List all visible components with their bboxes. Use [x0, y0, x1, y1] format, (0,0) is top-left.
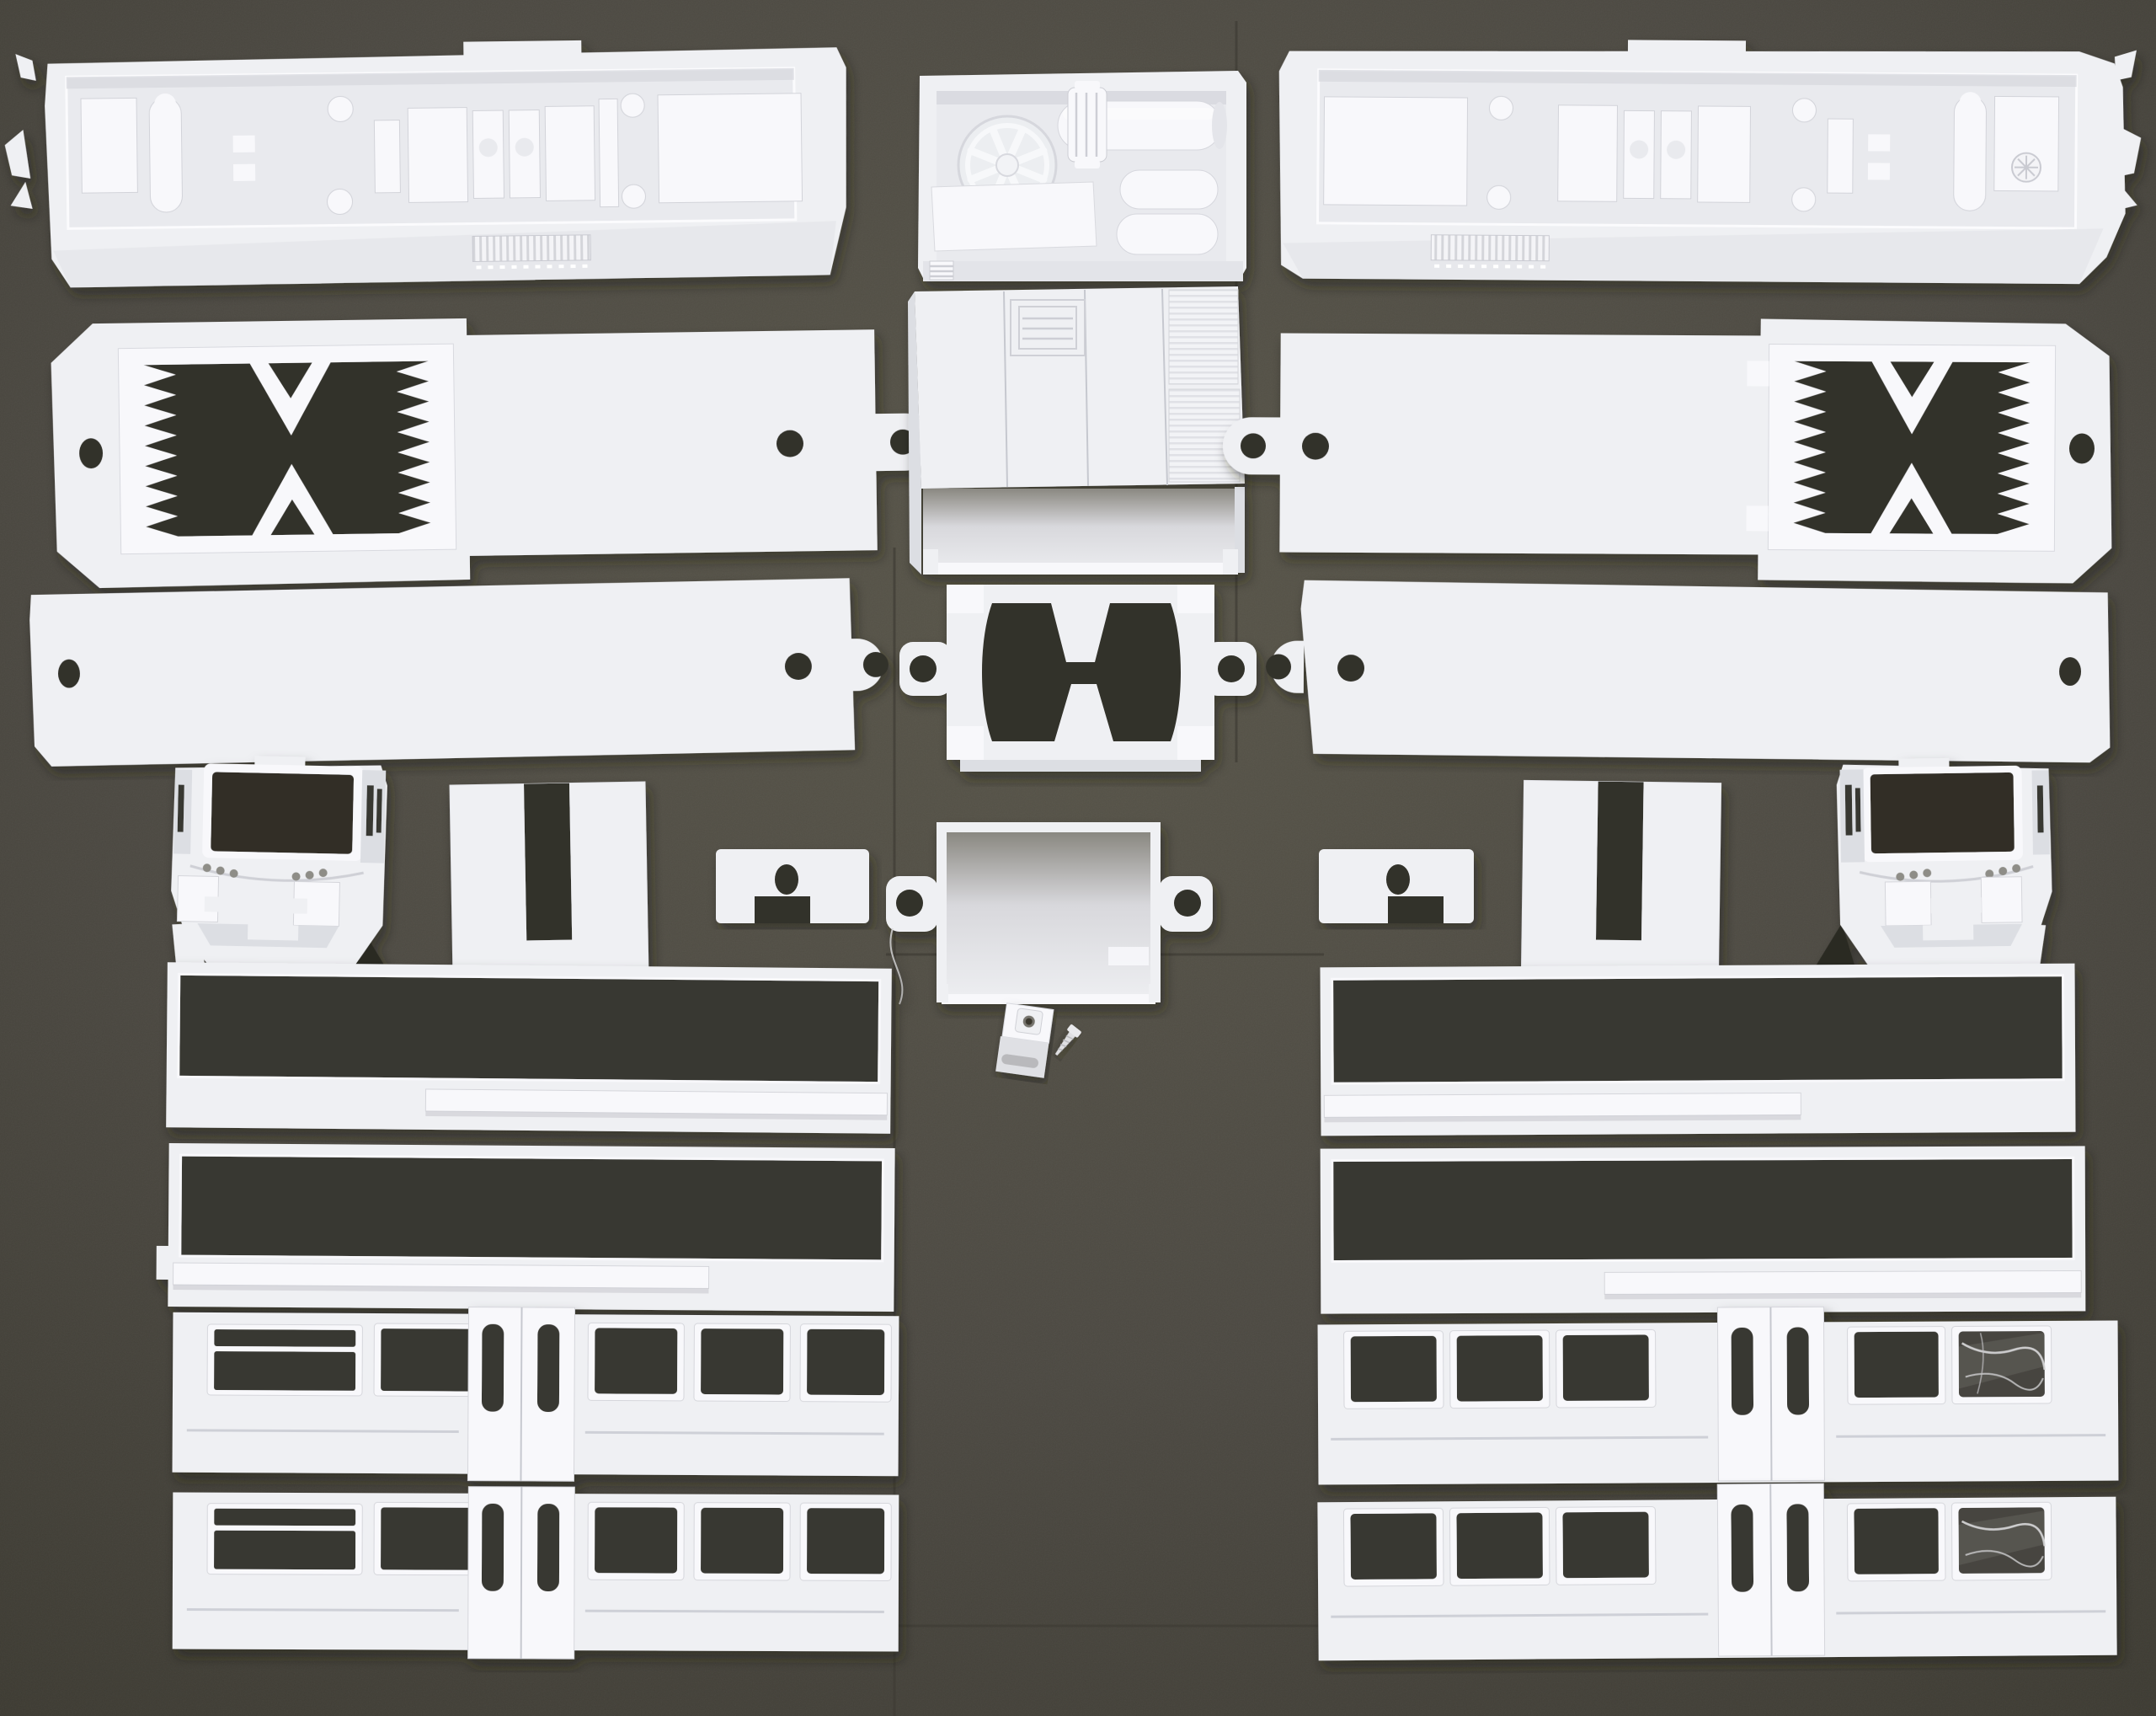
- window-opening: [595, 1328, 677, 1394]
- louvre-panel: [1169, 290, 1238, 384]
- floor-plate-right: [1265, 580, 2111, 762]
- side-wall-right-lower: [1317, 1482, 2116, 1661]
- bumper-bar: [1931, 897, 1982, 913]
- corner-tab: [937, 984, 948, 1002]
- boss: [622, 184, 645, 208]
- bumper-pod: [1981, 877, 2022, 923]
- window-frame-left-upper: [166, 962, 892, 1133]
- corner-notch: [1223, 549, 1238, 575]
- box-interior: [947, 832, 1150, 994]
- side-window-slot: [376, 789, 382, 832]
- hatch-panel: [1698, 106, 1751, 202]
- glazing-film-window: [1952, 1326, 2052, 1404]
- mount-hole: [2069, 433, 2095, 463]
- detail-panel: [658, 94, 803, 203]
- mount-hole: [1337, 655, 1364, 682]
- side-window-slot: [178, 785, 184, 832]
- clamp-step: [430, 361, 452, 386]
- clamp-step: [1747, 361, 1769, 386]
- floor-plate-left: [29, 578, 890, 767]
- cab-shell-left: [169, 754, 391, 972]
- windscreen-opening: [1870, 772, 2015, 853]
- window-opening: [1351, 1336, 1437, 1403]
- parts-photo: [0, 0, 2156, 1716]
- window-frame-left-lower: [156, 1143, 894, 1312]
- sill-strip: [425, 1089, 887, 1115]
- hood-interior: [923, 489, 1238, 573]
- eyelet-hole: [1218, 655, 1245, 682]
- clip-plate-right: [1319, 849, 1474, 923]
- air-tank: [1120, 170, 1218, 209]
- glazing-opening: [1332, 976, 2064, 1084]
- eyelet-hole: [1266, 654, 1291, 679]
- eyelet-hole: [896, 890, 923, 917]
- air-tank: [1117, 214, 1218, 254]
- clip-plate-left: [716, 849, 869, 923]
- photo-figure: [0, 0, 2156, 1716]
- flat-block: [931, 182, 1097, 251]
- detail-nub: [1868, 134, 1890, 151]
- side-wall-left-upper: [172, 1306, 899, 1483]
- bumper-pod: [1885, 881, 1931, 926]
- side-window-slot: [1855, 788, 1861, 831]
- door-window: [537, 1504, 559, 1591]
- bottom-notch: [1388, 896, 1444, 923]
- windscreen-opening: [211, 772, 354, 853]
- glazing-opening: [179, 974, 880, 1083]
- door-window: [482, 1504, 504, 1591]
- side-wall-left-lower: [173, 1485, 899, 1660]
- oval-hole: [1386, 864, 1410, 895]
- boss: [1792, 99, 1816, 122]
- mount-hole: [1302, 433, 1329, 460]
- slotted-plate-right: [1521, 780, 1721, 976]
- bottom-notch: [755, 896, 810, 923]
- clamp-step: [1746, 505, 1768, 531]
- roof-tab: [1628, 40, 1746, 54]
- boss: [621, 94, 644, 117]
- sill-strip: [1324, 1093, 1801, 1117]
- side-wall-right-upper: [1317, 1306, 2118, 1485]
- vent-grille: [1431, 235, 1549, 261]
- eyelet-hole: [910, 655, 937, 682]
- mount-hole: [2059, 657, 2081, 686]
- glazing-film-window: [1951, 1502, 2052, 1580]
- window-opening: [1563, 1334, 1649, 1401]
- clamp-step: [432, 505, 454, 531]
- hatch-panel: [545, 106, 595, 201]
- detail-nub: [233, 136, 255, 152]
- motor-mount-frame: [899, 585, 1257, 772]
- engine-tray: [918, 71, 1246, 281]
- plate-slot: [1596, 782, 1644, 941]
- eyelet-hole: [1174, 890, 1201, 917]
- window-opening: [1456, 1512, 1543, 1579]
- corner-post: [947, 726, 984, 760]
- bumper-bar: [205, 896, 307, 914]
- boss: [328, 96, 353, 121]
- window-opening: [807, 1329, 884, 1395]
- side-window-slot: [366, 785, 374, 836]
- detail-panel: [1324, 97, 1468, 206]
- window-opening: [1457, 1335, 1543, 1402]
- boss: [1792, 188, 1816, 211]
- door-window: [1786, 1504, 1809, 1591]
- window-opening: [1854, 1332, 1939, 1398]
- hatch-panel: [408, 108, 467, 203]
- door-window: [1787, 1327, 1810, 1414]
- corner-post: [1177, 585, 1214, 613]
- detail-block: [81, 98, 137, 193]
- vent-grille: [472, 235, 590, 262]
- window-opening: [1562, 1512, 1649, 1579]
- door-window: [537, 1324, 560, 1412]
- roof-shell-right: [1278, 37, 2142, 284]
- corner-post: [947, 585, 984, 613]
- door-window: [1732, 1328, 1754, 1415]
- chassis-clamp-right: [1222, 316, 2113, 584]
- corner-post: [1177, 726, 1214, 760]
- eyelet-hole: [1241, 433, 1266, 458]
- glazing-opening: [180, 1155, 883, 1261]
- boss: [1489, 96, 1513, 120]
- sill-strip: [1604, 1270, 2081, 1294]
- window-opening: [214, 1509, 355, 1526]
- window-opening: [1350, 1513, 1437, 1580]
- window-opening: [807, 1508, 884, 1574]
- window-opening: [214, 1329, 355, 1347]
- roof-tab: [463, 40, 581, 56]
- boss: [1487, 185, 1511, 209]
- window-opening: [214, 1351, 355, 1391]
- chassis-clamp-left: [51, 312, 935, 589]
- slotted-plate-left: [450, 782, 648, 979]
- boss: [327, 189, 352, 214]
- door-window: [1731, 1505, 1753, 1592]
- plate-slot: [524, 783, 572, 941]
- corner-tab: [1149, 984, 1161, 1002]
- window-opening: [214, 1531, 355, 1570]
- window-frame-right-upper: [1320, 964, 2075, 1136]
- door-window: [482, 1324, 504, 1412]
- window-opening: [1854, 1508, 1939, 1574]
- rosette-boss: [2012, 153, 2041, 182]
- window-opening: [701, 1508, 783, 1574]
- side-window-slot: [1845, 785, 1853, 836]
- detail-nub: [1868, 163, 1890, 179]
- window-frame-right-lower: [1321, 1146, 2086, 1313]
- oval-hole: [775, 864, 798, 895]
- hatch-panel: [1558, 105, 1618, 201]
- interior-step: [1108, 947, 1149, 965]
- detail-nub: [233, 164, 255, 181]
- roof-shell-left: [3, 37, 848, 288]
- hood-unit: [908, 286, 1245, 575]
- window-opening: [701, 1328, 783, 1395]
- glazing-opening: [1332, 1157, 2073, 1261]
- frame-step: [960, 760, 1201, 772]
- window-opening: [595, 1507, 677, 1573]
- corner-notch: [923, 549, 938, 575]
- sill-strip: [173, 1263, 709, 1288]
- side-window-slot: [2037, 785, 2044, 832]
